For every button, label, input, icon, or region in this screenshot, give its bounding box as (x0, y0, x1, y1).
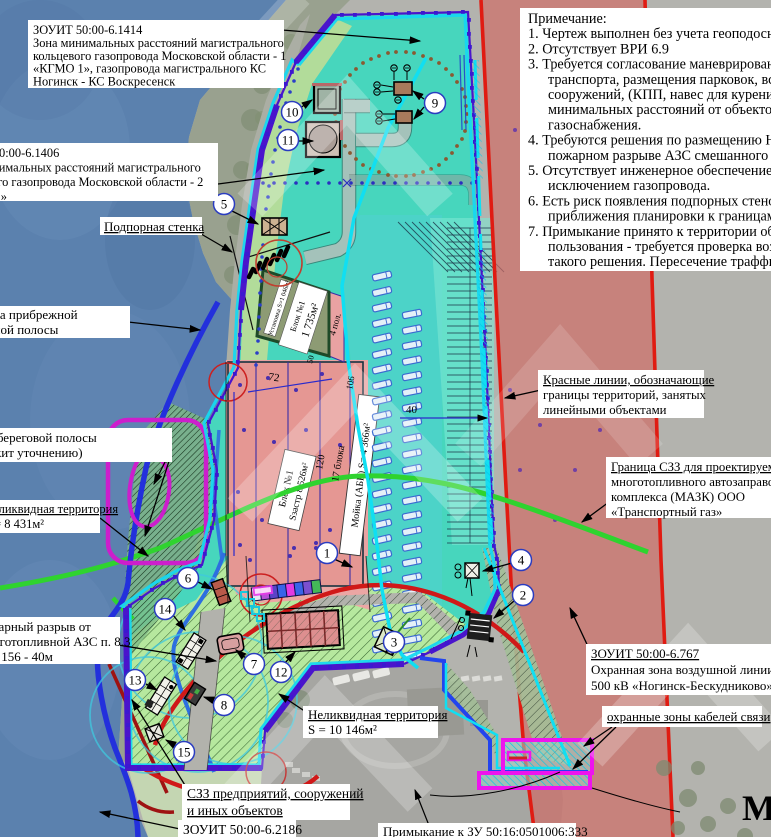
svg-text:14: 14 (159, 602, 173, 617)
svg-text:Красные линии, обозначающие: Красные линии, обозначающие (543, 373, 715, 387)
svg-text:3: 3 (391, 635, 398, 650)
svg-text:Граница СЗЗ для проектируемого: Граница СЗЗ для проектируемого (611, 460, 771, 474)
svg-text:Примечание:: Примечание: (528, 11, 607, 27)
svg-text:8: 8 (221, 698, 228, 713)
svg-text:S = 8 431м²: S = 8 431м² (0, 517, 44, 531)
svg-text:ЗОУИТ 50:00-6.767: ЗОУИТ 50:00-6.767 (591, 646, 700, 661)
svg-text:пожарном разрыве АЗС смешанног: пожарном разрыве АЗС смешанного топлива (548, 148, 771, 164)
svg-text:Ногинск - КС Воскресенск: Ногинск - КС Воскресенск (33, 75, 176, 89)
svg-text:11: 11 (282, 133, 295, 148)
svg-text:4. Требуются решения по разме: 4. Требуются решения по размещению НСО в (528, 133, 771, 149)
svg-text:«КГМО 2»: «КГМО 2» (0, 190, 7, 204)
svg-text:«Транспортный газ»: «Транспортный газ» (611, 505, 722, 519)
svg-text:кольцевого газопровода Московс: кольцевого газопровода Московской област… (33, 49, 286, 63)
svg-text:газоснабжения.: газоснабжения. (548, 117, 641, 133)
svg-text:Неликвидная территория: Неликвидная территория (308, 707, 447, 722)
svg-text:7. Примыкание принято к терри: 7. Примыкание принято к территории общег… (528, 224, 771, 240)
svg-text:2: 2 (520, 588, 527, 603)
svg-text:минимальных расстояний от объе: минимальных расстояний от объектов (548, 102, 771, 118)
svg-text:«КГМО 1», газопровода магистра: «КГМО 1», газопровода магистрального КС (33, 62, 266, 76)
svg-text:Граница прибрежной: Граница прибрежной (0, 307, 78, 322)
svg-text:пользования - требуется провер: пользования - требуется проверка возможн… (548, 239, 771, 255)
svg-text:6. Есть риск появления подпор: 6. Есть риск появления подпорных стенок … (528, 193, 771, 209)
svg-text:кольцевого газопровода Московс: кольцевого газопровода Московской област… (0, 175, 203, 189)
svg-text:Зона минимальных расстояний ма: Зона минимальных расстояний магистрально… (0, 161, 201, 175)
svg-text:5: 5 (221, 197, 228, 212)
svg-text:защитной полосы: защитной полосы (0, 322, 59, 337)
svg-text:3. Требуется согласование ман: 3. Требуется согласование маневрирования (528, 57, 771, 73)
svg-text:такого решения. Пересечение тр: такого решения. Пересечение траффика (548, 254, 771, 270)
svg-text:1: 1 (324, 546, 331, 561)
svg-text:500 кВ «Ногинск-Бескудниково»: 500 кВ «Ногинск-Бескудниково» (591, 678, 771, 693)
svg-text:СП 156 - 40м: СП 156 - 40м (0, 649, 53, 664)
svg-text:ЗОУИТ 50:00-6.1406: ЗОУИТ 50:00-6.1406 (0, 146, 59, 160)
svg-text:2. Отсутствует ВРИ 6.9: 2. Отсутствует ВРИ 6.9 (528, 41, 669, 57)
svg-text:границы территорий, занятых: границы территорий, занятых (543, 388, 707, 402)
svg-text:многотопливного автозаправочно: многотопливного автозаправочного (611, 475, 771, 489)
svg-text:13: 13 (129, 673, 142, 688)
svg-text:Неликвидная территория: Неликвидная территория (0, 502, 118, 516)
svg-text:(подлежит уточнению): (подлежит уточнению) (0, 445, 83, 460)
svg-text:5. Отсутствует инженерное обе: 5. Отсутствует инженерное обеспечение уч… (528, 163, 771, 179)
svg-text:12: 12 (275, 665, 288, 680)
svg-text:Примыкание к ЗУ 50:16:0501006:: Примыкание к ЗУ 50:16:0501006:333 (383, 824, 588, 837)
svg-text:комплекса (МАЗК) ООО: комплекса (МАЗК) ООО (611, 490, 745, 504)
svg-text:приближения планировки к грани: приближения планировки к границам ЗУ. (548, 209, 771, 225)
svg-text:40: 40 (406, 404, 418, 416)
svg-text:9: 9 (432, 96, 439, 111)
svg-text:ЗОУИТ 50:00-6.1414: ЗОУИТ 50:00-6.1414 (33, 23, 142, 37)
svg-text:многотопливной АЗС п. 8.3: многотопливной АЗС п. 8.3 (0, 634, 130, 649)
svg-text:7: 7 (251, 657, 258, 672)
svg-text:охранные зоны кабелей связи: охранные зоны кабелей связи (607, 709, 771, 724)
svg-text:линейными объектами: линейными объектами (543, 403, 667, 417)
svg-text:и иных объектов: и иных объектов (187, 803, 283, 818)
svg-text:Зона минимальных расстояний ма: Зона минимальных расстояний магистрально… (33, 36, 284, 50)
svg-text:исключением газопровода.: исключением газопровода. (548, 178, 710, 194)
svg-text:ЗОУИТ 50:00-6.2186: ЗОУИТ 50:00-6.2186 (183, 822, 302, 837)
svg-text:10: 10 (286, 105, 299, 120)
svg-text:Граница береговой полосы: Граница береговой полосы (0, 430, 97, 445)
svg-text:Пожарный разрыв от: Пожарный разрыв от (0, 619, 91, 634)
svg-text:М: М (742, 788, 771, 828)
svg-text:СЗЗ предприятий, сооружений: СЗЗ предприятий, сооружений (187, 786, 364, 801)
svg-text:15: 15 (178, 745, 191, 760)
svg-text:72: 72 (268, 371, 281, 384)
svg-text:6: 6 (185, 571, 192, 586)
svg-text:1. Чертеж выполнен без учета: 1. Чертеж выполнен без учета геоподоснов… (528, 26, 771, 42)
svg-text:сооружений, (КПП, навес для ку: сооружений, (КПП, навес для курения), с (548, 87, 771, 103)
svg-text:Подпорная стенка: Подпорная стенка (104, 219, 204, 234)
svg-text:транспорта, размещения парково: транспорта, размещения парковок, вспомог… (548, 72, 771, 88)
svg-text:S = 10 146м²: S = 10 146м² (308, 722, 377, 737)
svg-text:Охранная зона воздушной линии: Охранная зона воздушной линии электроп. (591, 662, 771, 677)
svg-text:4: 4 (518, 553, 525, 568)
